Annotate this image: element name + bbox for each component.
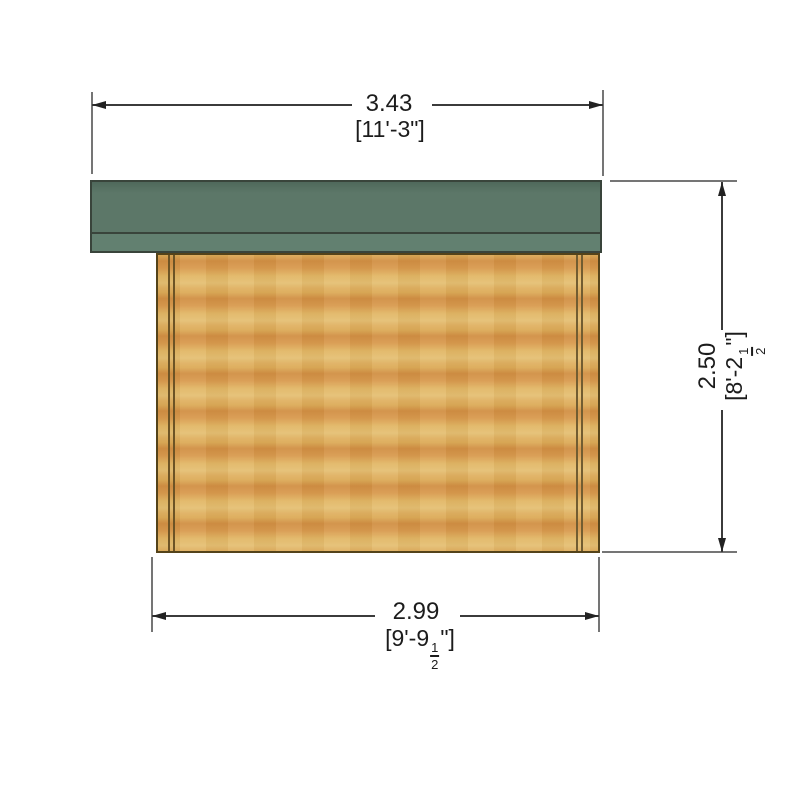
right-height-imperial-label: [8'-212"] bbox=[722, 331, 767, 401]
dimension-line-top-right-segment bbox=[432, 104, 603, 106]
extension-line-bottom-right bbox=[598, 557, 600, 632]
imperial-open: [8'-2 bbox=[721, 357, 747, 401]
roof-fascia bbox=[92, 232, 600, 251]
arrowhead-right-icon bbox=[585, 612, 599, 620]
corner-post-line-right-inner bbox=[581, 255, 583, 551]
dimension-line-bottom-right-segment bbox=[460, 615, 599, 617]
right-height-labels: 2.50 [8'-212"] bbox=[695, 331, 767, 401]
imperial-close: "] bbox=[721, 331, 747, 346]
dimension-line-right-lower-segment bbox=[721, 410, 723, 552]
imperial-open: [9'-9 bbox=[385, 625, 429, 651]
fraction-denominator: 2 bbox=[753, 348, 767, 355]
dimension-line-top-left-segment bbox=[92, 104, 352, 106]
elevation-diagram: 3.43 [11'-3"] 2.99 [9'-912"] 2.50 [8'-21… bbox=[0, 0, 800, 800]
fraction-denominator: 2 bbox=[431, 657, 438, 671]
arrowhead-left-icon bbox=[152, 612, 166, 620]
arrowhead-down-icon bbox=[718, 538, 726, 552]
bottom-width-imperial-label: [9'-912"] bbox=[385, 625, 455, 671]
arrowhead-up-icon bbox=[718, 182, 726, 196]
corner-post-line-left-inner bbox=[173, 255, 175, 551]
extension-line-right-bottom bbox=[602, 551, 737, 553]
fraction-one-half: 12 bbox=[737, 347, 767, 356]
imperial-close: "] bbox=[440, 625, 455, 651]
top-width-metric-label: 3.43 bbox=[366, 90, 413, 118]
fraction-numerator: 1 bbox=[430, 641, 439, 657]
bottom-width-metric-label: 2.99 bbox=[393, 598, 440, 626]
right-height-metric-label: 2.50 bbox=[695, 343, 722, 390]
arrowhead-right-icon bbox=[589, 101, 603, 109]
dimension-line-right-upper-segment bbox=[721, 182, 723, 330]
top-width-imperial-label: [11'-3"] bbox=[355, 116, 425, 143]
arrowhead-left-icon bbox=[92, 101, 106, 109]
dimension-line-bottom-left-segment bbox=[152, 615, 375, 617]
corner-post-line-right-outer bbox=[576, 255, 578, 551]
fraction-numerator: 1 bbox=[737, 347, 753, 356]
fraction-one-half: 12 bbox=[430, 641, 439, 671]
corner-post-line-left-outer bbox=[168, 255, 170, 551]
extension-line-bottom-left bbox=[151, 557, 153, 632]
log-wall bbox=[156, 253, 600, 553]
roof bbox=[90, 180, 602, 253]
